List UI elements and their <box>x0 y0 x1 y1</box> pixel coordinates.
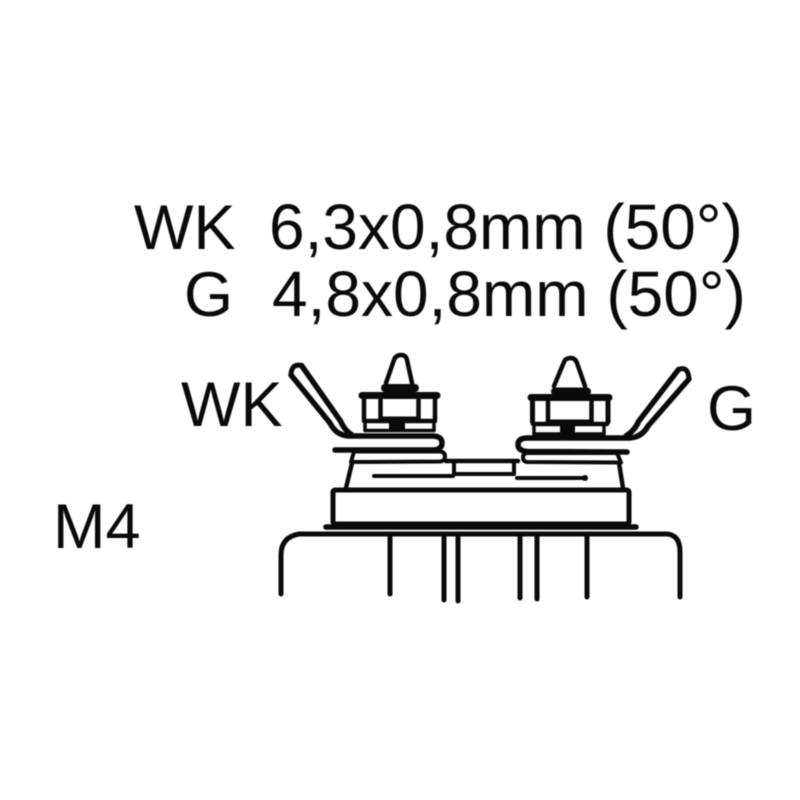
svg-text:4,8x0,8mm (50°): 4,8x0,8mm (50°) <box>272 258 746 330</box>
svg-text:G: G <box>184 260 233 330</box>
svg-text:WK: WK <box>181 370 282 440</box>
svg-text:G: G <box>707 374 756 444</box>
svg-text:M4: M4 <box>53 492 141 562</box>
svg-text:WK: WK <box>134 193 235 263</box>
svg-text:6,3x0,8mm (50°): 6,3x0,8mm (50°) <box>269 191 743 263</box>
